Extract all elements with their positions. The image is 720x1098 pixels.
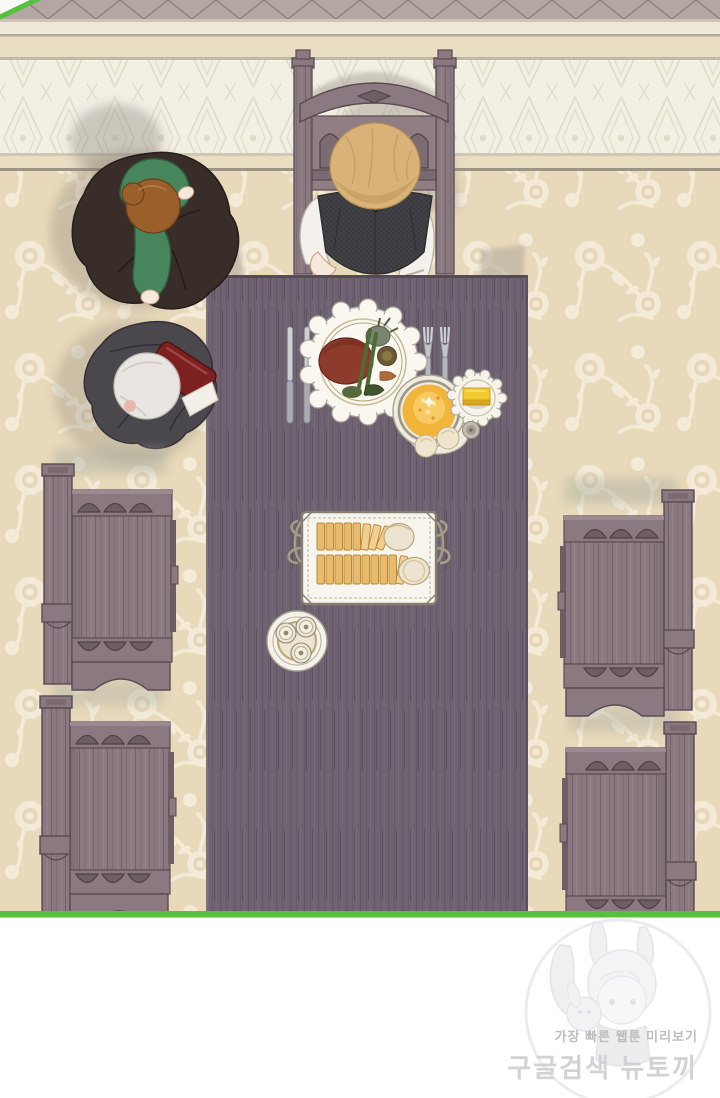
watermark: 가장 빠른 웹툰 미리보기 구글검색 뉴토끼 xyxy=(507,1026,698,1085)
character-maid xyxy=(50,150,239,310)
chair-left-2 xyxy=(40,696,176,922)
bread-slices-row1 xyxy=(317,523,414,551)
crown-molding xyxy=(0,0,720,19)
chair-right-1 xyxy=(558,490,694,716)
watermark-tagline: 가장 빠른 웹툰 미리보기 xyxy=(507,1026,698,1045)
bottom-border-line xyxy=(0,911,720,918)
salt-cellar xyxy=(463,422,480,439)
chair-left-1 xyxy=(42,464,178,690)
watermark-sitename: 구글검색 뉴토끼 xyxy=(507,1048,698,1085)
condiment-plate xyxy=(267,611,327,671)
webtoon-panel: 가장 빠른 웹툰 미리보기 구글검색 뉴토끼 xyxy=(0,0,720,1098)
dining-scene xyxy=(0,0,720,1098)
bread-tray xyxy=(289,512,450,604)
